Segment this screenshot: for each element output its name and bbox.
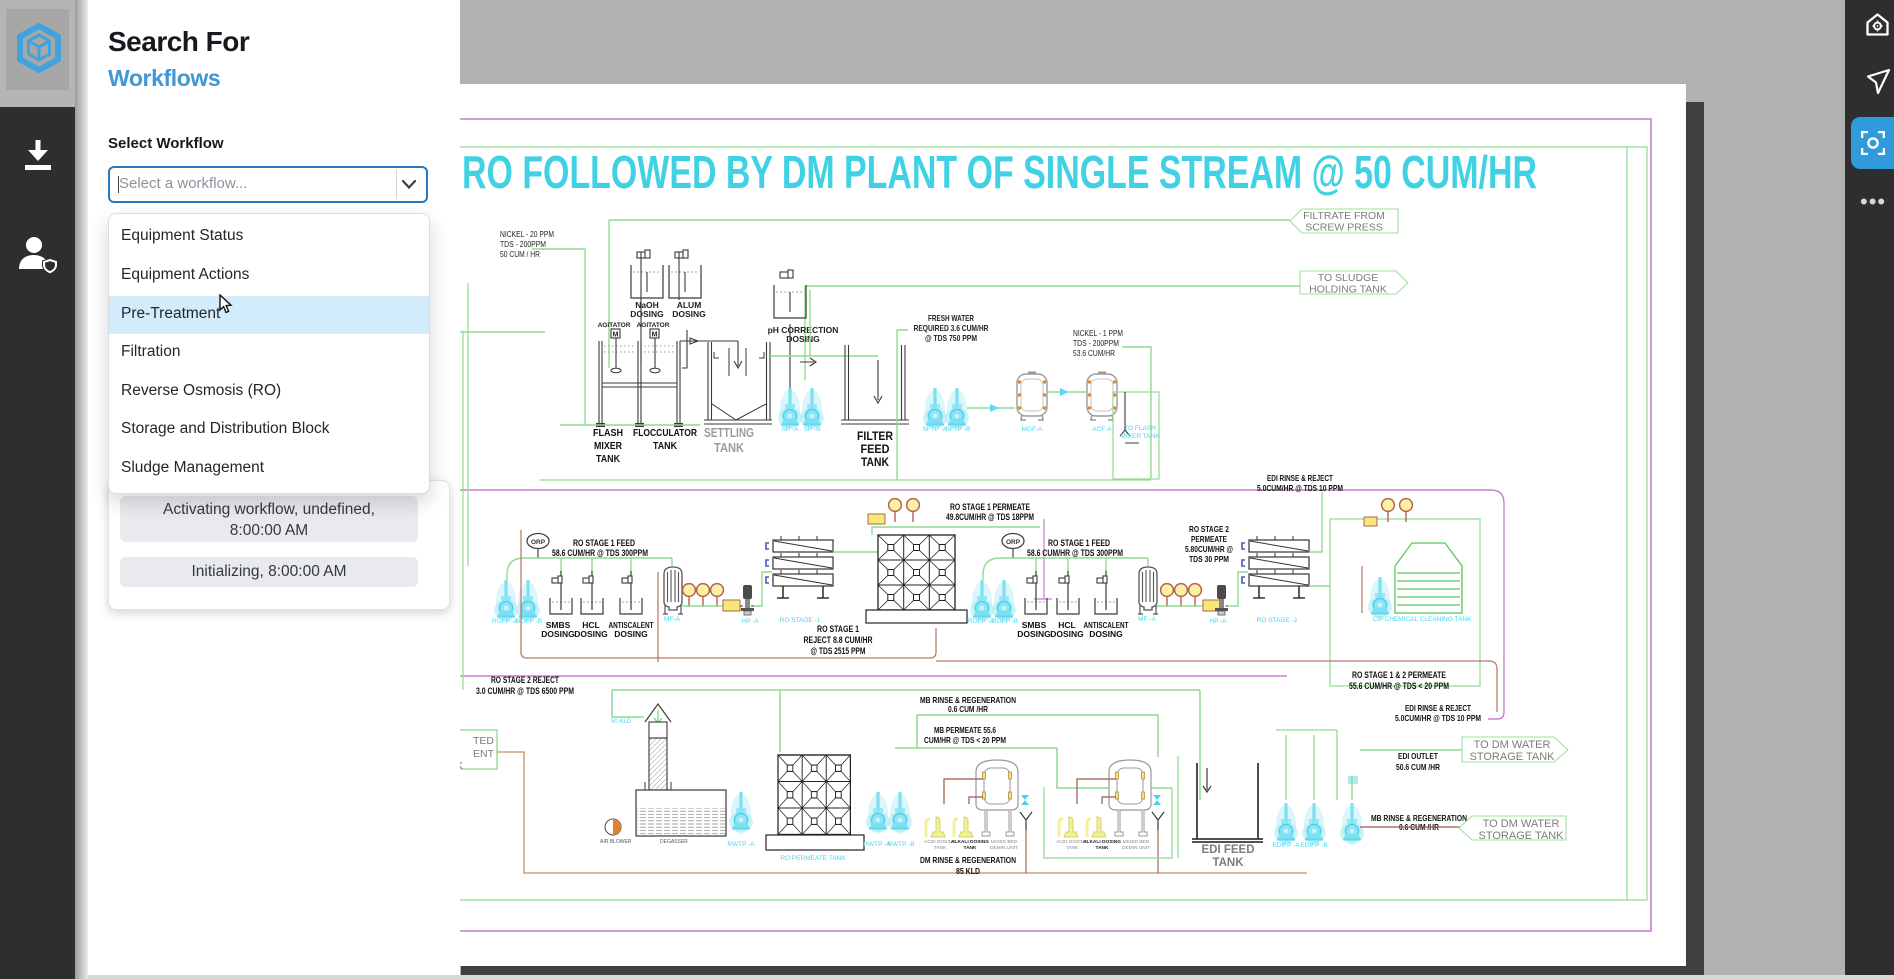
svg-text:TANK: TANK <box>1096 845 1110 851</box>
svg-text:50.6 CUM /HR: 50.6 CUM /HR <box>1396 762 1440 772</box>
svg-text:ACF-A: ACF-A <box>1092 426 1112 433</box>
svg-text:ROFP -A: ROFP -A <box>968 618 995 625</box>
svg-text:TANK: TANK <box>714 440 745 455</box>
svg-text:5.80CUM/HR @: 5.80CUM/HR @ <box>1185 544 1233 554</box>
svg-text:ALKALI DOSING: ALKALI DOSING <box>1083 839 1121 845</box>
svg-text:DOSING: DOSING <box>786 334 820 344</box>
svg-text:MGF-A: MGF-A <box>1022 426 1044 433</box>
svg-text:DOSING: DOSING <box>541 629 575 639</box>
svg-text:SP -B: SP -B <box>804 426 821 433</box>
svg-text:DEMIN UNIT: DEMIN UNIT <box>990 845 1018 851</box>
svg-text:AGITATOR: AGITATOR <box>598 322 631 329</box>
svg-text:TANK: TANK <box>1212 857 1244 869</box>
svg-text:TANK: TANK <box>653 440 677 452</box>
svg-text:FLOCCULATOR: FLOCCULATOR <box>633 427 697 439</box>
svg-text:FRESH WATER: FRESH WATER <box>928 313 974 323</box>
svg-text:ROFP -A: ROFP -A <box>492 618 519 625</box>
svg-text:FILTER: FILTER <box>857 431 894 443</box>
svg-text:53.6 CUM/HR: 53.6 CUM/HR <box>1073 348 1115 358</box>
svg-text:TDS - 200PPM: TDS - 200PPM <box>500 240 546 249</box>
svg-text:M: M <box>652 332 658 339</box>
svg-text:TANK: TANK <box>964 845 978 851</box>
svg-text:RO STAGE -1: RO STAGE -1 <box>780 617 821 624</box>
svg-text:TO DM WATER: TO DM WATER <box>1474 739 1551 751</box>
svg-text:SFTP -B: SFTP -B <box>946 426 971 433</box>
svg-text:TDS - 200PPM: TDS - 200PPM <box>1073 338 1119 348</box>
svg-text:EDIFP -A: EDIFP -A <box>1272 842 1300 849</box>
svg-text:TANK: TANK <box>934 845 947 851</box>
svg-text:MIXER TANK: MIXER TANK <box>1120 433 1160 440</box>
svg-text:ORP: ORP <box>1006 539 1021 546</box>
svg-text:EDI RINSE & REJECT: EDI RINSE & REJECT <box>1405 703 1472 713</box>
svg-text:AGITATOR: AGITATOR <box>637 322 670 329</box>
svg-text:SFTP -A: SFTP -A <box>923 426 948 433</box>
svg-text:DOSING: DOSING <box>672 309 706 319</box>
svg-text:NICKEL - 1 PPM: NICKEL - 1 PPM <box>1073 328 1123 338</box>
svg-text:ROFP -B: ROFP -B <box>992 618 1018 625</box>
svg-text:RO STAGE 1: RO STAGE 1 <box>817 624 860 635</box>
svg-text:ENT: ENT <box>473 748 495 760</box>
svg-text:MF-A: MF-A <box>664 616 681 623</box>
svg-text:REJECT 8.8 CUM/HR: REJECT 8.8 CUM/HR <box>804 635 873 646</box>
svg-text:AIR BLOWER: AIR BLOWER <box>600 839 632 845</box>
svg-text:DOSING: DOSING <box>574 629 608 639</box>
svg-text:PERMEATE: PERMEATE <box>1191 534 1227 544</box>
svg-text:MIXER: MIXER <box>594 440 622 452</box>
svg-text:ALKALI DOSING: ALKALI DOSING <box>951 839 989 845</box>
svg-text:MF -A: MF -A <box>1138 616 1156 623</box>
svg-text:RO STAGE -2: RO STAGE -2 <box>1257 617 1298 624</box>
svg-text:55.6 CUM/HR @ TDS < 20 PPM: 55.6 CUM/HR @ TDS < 20 PPM <box>1349 681 1449 692</box>
svg-text:TANK: TANK <box>1066 845 1079 851</box>
svg-text:CUM/HR @ TDS < 20 PPM: CUM/HR @ TDS < 20 PPM <box>924 735 1006 745</box>
svg-text:MIXED BED: MIXED BED <box>1123 839 1150 845</box>
svg-text:TO FLASH: TO FLASH <box>1124 425 1156 432</box>
svg-text:TANK: TANK <box>596 453 620 465</box>
svg-text:FLASH: FLASH <box>593 427 623 439</box>
svg-text:RO PERMEATE TANK: RO PERMEATE TANK <box>780 855 846 862</box>
svg-text:CHEMICAL CLEANING TANK: CHEMICAL CLEANING TANK <box>1385 616 1473 623</box>
svg-text:EDI FEED: EDI FEED <box>1201 844 1254 856</box>
svg-text:@ TDS 750 PPM: @ TDS 750 PPM <box>925 333 977 343</box>
svg-text:ROFP -B: ROFP -B <box>516 618 542 625</box>
svg-text:0.6 CUM /HR: 0.6 CUM /HR <box>948 704 988 714</box>
svg-text:EDIFP -B: EDIFP -B <box>1300 842 1327 849</box>
svg-text:DM RINSE & REGENERATION: DM RINSE & REGENERATION <box>920 855 1016 865</box>
svg-text:RWTP -B: RWTP -B <box>887 841 914 848</box>
svg-text:DOSING: DOSING <box>630 309 664 319</box>
svg-text:49.8CUM/HR @ TDS 18PPM: 49.8CUM/HR @ TDS 18PPM <box>946 512 1034 523</box>
svg-text:TED: TED <box>473 735 494 747</box>
svg-text:5.0CUM/HR @ TDS 10 PPM: 5.0CUM/HR @ TDS 10 PPM <box>1395 713 1481 723</box>
svg-text:3.0 CUM/HR @ TDS 6500 PPM: 3.0 CUM/HR @ TDS 6500 PPM <box>476 686 574 697</box>
svg-text:5.0CUM/HR @ TDS 10 PPM: 5.0CUM/HR @ TDS 10 PPM <box>1257 483 1343 493</box>
svg-text:HP -A: HP -A <box>1209 618 1227 625</box>
svg-text:STORAGE TANK: STORAGE TANK <box>1470 751 1556 763</box>
svg-text:FEED: FEED <box>861 444 890 456</box>
svg-text:DEGASSER: DEGASSER <box>660 839 688 845</box>
svg-text:MB RINSE & REGENERATION: MB RINSE & REGENERATION <box>1371 814 1467 823</box>
svg-text:@ TDS 2515 PPM: @ TDS 2515 PPM <box>811 646 866 657</box>
svg-text:TO SLUDGE: TO SLUDGE <box>1318 272 1379 284</box>
svg-text:SP -A: SP -A <box>782 426 800 433</box>
svg-text:DOSING: DOSING <box>1050 629 1084 639</box>
svg-text:RO STAGE 2 REJECT: RO STAGE 2 REJECT <box>491 675 559 686</box>
svg-text:HOLDING TANK: HOLDING TANK <box>1309 284 1387 296</box>
svg-text:TO DM WATER: TO DM WATER <box>1483 818 1560 830</box>
svg-text:HP -A: HP -A <box>741 618 759 625</box>
svg-text:DEMIN UNIT: DEMIN UNIT <box>1122 845 1150 851</box>
svg-text:CIP: CIP <box>1373 616 1384 623</box>
svg-text:MIXED BED: MIXED BED <box>991 839 1018 845</box>
svg-text:MB PERMEATE 55.6: MB PERMEATE 55.6 <box>934 725 996 735</box>
svg-text:DOSING: DOSING <box>1017 629 1051 639</box>
svg-text:DOSING: DOSING <box>614 629 648 639</box>
svg-text:STORAGE TANK: STORAGE TANK <box>1479 830 1565 842</box>
svg-text:50 KLD: 50 KLD <box>611 719 632 725</box>
svg-text:RO STAGE 2: RO STAGE 2 <box>1189 524 1229 534</box>
svg-text:SETTLING: SETTLING <box>704 425 754 440</box>
svg-text:FILTRATE FROM: FILTRATE FROM <box>1303 210 1385 222</box>
svg-text:RWTP -A: RWTP -A <box>727 841 755 848</box>
svg-text:85 KLD: 85 KLD <box>956 866 980 876</box>
svg-text:M: M <box>613 332 619 339</box>
svg-text:TDS 30 PPM: TDS 30 PPM <box>1189 554 1229 564</box>
svg-text:50 CUM / HR: 50 CUM / HR <box>500 250 540 259</box>
svg-text:EDI OUTLET: EDI OUTLET <box>1398 751 1439 761</box>
svg-text:TANK: TANK <box>861 457 890 469</box>
svg-text:ORP: ORP <box>531 539 546 546</box>
svg-text:RO FOLLOWED BY DM PLANT OF SIN: RO FOLLOWED BY DM PLANT OF SINGLE STREAM… <box>462 146 1537 198</box>
svg-text:REQUIRED 3.6 CUM/HR: REQUIRED 3.6 CUM/HR <box>914 323 989 333</box>
svg-text:NICKEL - 20 PPM: NICKEL - 20 PPM <box>500 230 554 239</box>
svg-text:EDI RINSE & REJECT: EDI RINSE & REJECT <box>1267 473 1334 483</box>
svg-text:RO STAGE 1 & 2 PERMEATE: RO STAGE 1 & 2 PERMEATE <box>1352 670 1446 681</box>
svg-text:SCREW PRESS: SCREW PRESS <box>1305 222 1383 234</box>
svg-text:DOSING: DOSING <box>1089 629 1123 639</box>
